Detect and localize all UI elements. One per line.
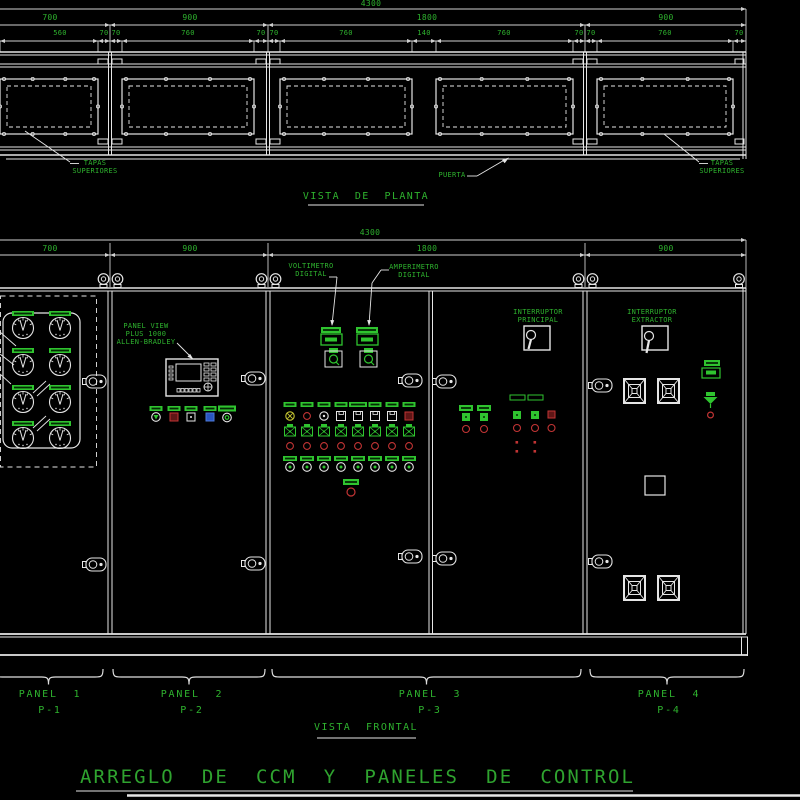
pilot-run [408,466,411,469]
gauge-tick [18,319,19,321]
top-cover-opening [597,79,733,134]
indicator-red-square [548,411,555,418]
front-label_int_extractor-0: INTERRUPTOR [627,309,677,316]
lifting-eye [273,277,277,281]
front-label_int_principal-1: PRINCIPAL [518,317,559,324]
front-label_panelview-1: PLUS 1000 [126,331,167,338]
gauge-tick [55,356,56,358]
lifting-eye-base [100,285,107,288]
gauge-needle [57,320,60,331]
label-plate-text [14,313,32,315]
label-plate-text [14,350,32,352]
leader-amperimetro-arrow [367,320,371,326]
dim-arrow [275,39,280,43]
front-panels-3-code: P-4 [657,706,680,716]
plan-caption: VISTA DE PLANTA [303,192,429,202]
plan-dim_openings-0: 560 [53,30,67,37]
gauge-needle [23,394,26,405]
dim-arrow [741,238,746,242]
gauge-tick [51,361,53,362]
joint-tab [587,139,597,144]
lifting-eye [737,277,741,281]
plan-dim_panels-0: 700 [42,14,57,22]
gauge-plate [3,313,80,448]
dim-arrow [412,39,417,43]
dim-arrow [117,39,122,43]
label-plate-text [206,408,215,410]
gauge-needle [60,357,63,368]
plan-label_tapas_left-0: TAPAS [84,160,107,167]
dim-arrow [580,253,585,257]
indicator-green [483,416,485,418]
front-label_panelview-0: PANEL VIEW [123,323,168,330]
dim-arrow [280,39,285,43]
dim-arrow [741,39,746,43]
leader-puerta-arrow [502,158,509,164]
dot [59,445,60,446]
breaker-knob-lever [647,341,650,354]
front-panels-2-name: PANEL 3 [399,690,462,700]
label-plate-text [51,350,69,352]
indicator-green [516,414,518,416]
door-handle-button [605,560,608,563]
dim-arrow [249,39,254,43]
dot [59,409,60,410]
joint-tab [587,59,597,64]
indicator-dot [534,441,537,444]
front-panels-2-code: P-3 [418,706,441,716]
label-plate-text [51,313,69,315]
label-plate-text [353,458,363,460]
hatch [37,384,50,396]
pushbutton-stop [406,443,413,450]
front-dim_total: 4300 [360,229,380,237]
pushbutton-red [304,413,311,420]
motor-symbol [306,431,308,433]
dot [55,334,56,335]
label-plate-text [170,408,179,410]
top-cover-opening [280,79,412,134]
plan-dim_openings-12: 70 [734,30,743,37]
gauge-tick [51,398,53,399]
dot [18,334,19,335]
label-plate-text [387,458,397,460]
front-panels-1-name: PANEL 2 [161,690,224,700]
indicator-red [532,425,539,432]
cad-drawing-canvas: 4300700900180090056070707607070760140760… [0,0,800,800]
label-plate-text [286,404,295,406]
dim-arrow [268,23,273,27]
joint-tab [256,139,266,144]
p4-cutout [645,476,665,495]
lifting-eye-base [258,285,265,288]
dot [26,334,27,335]
panel-brace [113,669,265,685]
fan-louver [632,389,637,394]
front-label_int_principal-0: INTERRUPTOR [513,309,563,316]
joint-tab [270,139,280,144]
hmi-key [193,389,196,393]
label-plate-text [345,481,357,483]
dim-arrow [105,23,110,27]
dim-arrow [733,39,738,43]
plan-dim_openings-7: 140 [417,30,431,37]
fan-louver [632,586,637,591]
door-handle-lock [439,378,447,386]
joint-tab [270,59,280,64]
dim-arrow [580,39,585,43]
label-plate-text [370,458,380,460]
label-plate-text [404,458,414,460]
door-handle-button [99,563,102,566]
gauge-tick [27,393,28,395]
front-panels-0-code: P-1 [38,706,61,716]
gauge-needle [23,430,26,441]
breaker-knob [645,332,654,341]
plan-label_tapas_right-0: TAPAS [711,160,734,167]
gauge-needle [57,394,60,405]
front-dim_panels-2: 1800 [417,245,437,253]
lifting-eye [576,277,580,281]
dim-arrow [741,23,746,27]
pushbutton-stop [372,443,379,450]
hmi-screen [176,364,201,381]
label-plate-text [187,408,196,410]
dim-arrow [98,39,103,43]
door-handle-lock [248,560,256,568]
label-plate-text [461,407,471,409]
dim-arrow [580,23,585,27]
label-plate-text [320,404,329,406]
pilot-run [391,466,394,469]
door-handle-button [258,377,261,380]
label-plate-text [220,408,234,410]
hatch [33,381,46,393]
hmi-key [204,368,209,371]
motor-symbol [374,431,376,433]
dim-arrow [110,253,115,257]
pushbutton-stop [389,443,396,450]
lifting-eye [734,274,745,285]
joint-tab [573,139,583,144]
dot [26,371,27,372]
plan-dim_openings-3: 760 [181,30,195,37]
dot [55,444,56,445]
label-plate-text [51,387,69,389]
label-plate-text [323,329,339,331]
dim-arrow [105,39,110,43]
gauge-needle [60,430,63,441]
lifting-eye [573,274,584,285]
lifting-eye-base [589,285,596,288]
motor-symbol [391,431,393,433]
lifting-eye [101,277,105,281]
dim-arrow [585,39,590,43]
hmi-key [185,389,188,393]
plan-dim_openings-11: 760 [658,30,672,37]
indicator-red [548,425,555,432]
plan-label_tapas_left-1: SUPERIORES [72,168,117,175]
plan-dim_openings-1: 70 [99,30,108,37]
gauge-tick [14,398,16,399]
gauge-tick [18,429,19,431]
label-plate-text [302,458,312,460]
indicator-red [463,426,470,433]
hmi-key [181,389,184,393]
gauge-tick [14,324,16,325]
dim-arrow [436,39,441,43]
ammeter-display [361,338,373,342]
gauge-leader [0,374,11,384]
dot [18,371,19,372]
gauge-tick [67,324,69,325]
label-plate-text [285,458,295,460]
dim-arrow [407,39,412,43]
door-handle-button [449,557,452,560]
pushbutton-stop [287,443,294,450]
gauge-needle [20,357,23,368]
pushbutton [354,412,363,421]
motor-symbol [340,431,342,433]
pilot-white [323,415,325,417]
plan-label_puerta: PUERTA [438,172,465,179]
label-plate-text [14,423,32,425]
front-label_amperimetro-1: DIGITAL [398,272,430,279]
hmi-key [204,378,209,381]
label-plate-text [358,329,376,331]
gauge-needle [20,394,23,405]
selector-switch [360,351,377,367]
joint-tab [112,59,122,64]
dim-arrow [741,7,746,11]
selector-knob [336,362,339,365]
front-label_amperimetro-0: AMPERIMETRO [389,264,439,271]
gauge-tick [51,434,53,435]
label-plate-text [351,404,365,406]
drawing-title: ARREGLO DE CCM Y PANELES DE CONTROL [80,768,635,787]
lifting-eye [256,274,267,285]
door-handle-lock [595,382,603,390]
extractor-switch [642,326,668,350]
label-plate-text [152,408,161,410]
gauge-needle [60,394,63,405]
pushbutton [371,412,380,421]
p4-indicator [706,371,716,375]
hmi-key [211,368,216,371]
dim-arrow [110,23,115,27]
gauge-tick [27,429,28,431]
joint-tab [98,59,108,64]
gauge-tick [18,393,19,395]
lifting-eye-base [736,285,743,288]
pushbutton-stop [321,443,328,450]
panel-brace [590,669,744,685]
front-panels-3-name: PANEL 4 [638,690,701,700]
label-plate-text [706,362,718,364]
hmi-key [169,374,173,376]
pilot-light-red [170,413,178,421]
dot [63,371,64,372]
leader-voltimetro [332,277,337,325]
dot [55,408,56,409]
front-caption: VISTA FRONTAL [314,723,418,733]
motor-symbol [357,431,359,433]
lifting-eye [112,274,123,285]
breaker-knob [527,331,536,340]
hmi-key [169,378,173,380]
front-dim_panels-0: 700 [42,245,57,253]
selector-switch [325,351,342,367]
front-label_voltimetro-1: DIGITAL [295,271,327,278]
dot [22,445,23,446]
dot [55,371,56,372]
top-cover-opening [0,79,98,134]
hmi-key [204,363,209,366]
door-handle-lock [89,561,97,569]
lifting-eye [259,277,263,281]
dim-arrow [568,39,573,43]
front-panels-0-name: PANEL 1 [19,690,82,700]
panel-brace [272,669,581,685]
lifting-eye [270,274,281,285]
gauge-tick [27,319,28,321]
gauge-tick [64,356,65,358]
top-cover-dashed [7,86,91,127]
label-plate-text [479,407,489,409]
front-dim_panels-3: 900 [658,245,673,253]
pilot-light-white [190,416,192,418]
dim-arrow [263,23,268,27]
gauge-needle [60,320,63,331]
motor-symbol [323,431,325,433]
voltmeter-display [325,338,337,342]
gauge-tick [64,319,65,321]
top-cover-dashed [443,86,566,127]
control-label-outline [510,395,525,400]
label-plate-text [14,387,32,389]
fan-louver [666,389,671,394]
pushbutton [388,412,397,421]
motor-symbol [408,431,410,433]
pushbutton [337,412,346,421]
p4-valve [706,392,715,396]
label-plate-text [303,404,312,406]
dim-arrow [263,39,268,43]
emergency-stop [347,488,355,496]
dim-arrow [268,39,273,43]
dot [63,408,64,409]
pilot-run [374,466,377,469]
dim-arrow [728,39,733,43]
joint-tab [573,59,583,64]
dot [63,444,64,445]
indicator-green [534,414,536,416]
dim-arrow [122,39,127,43]
door-handle-lock [89,378,97,386]
front-dim_panels-1: 900 [182,245,197,253]
front-label_panelview-2: ALLEN-BRADLEY [117,339,176,346]
gauge-tick [30,398,32,399]
label-plate-text [319,458,329,460]
plan-dim_panels-3: 900 [658,14,673,22]
plan-dim_panels-1: 900 [182,14,197,22]
front-label_voltimetro-0: VOLTIMETRO [288,263,333,270]
leader-amperimetro [369,283,372,325]
breaker-knob-lever [529,340,532,350]
gauge-tick [27,356,28,358]
dim-arrow [110,39,115,43]
door-handle-lock [405,553,413,561]
plan-dim_panels-2: 1800 [417,14,437,22]
plan-dim_openings-5: 70 [269,30,278,37]
gauge-tick [30,361,32,362]
gauge-needle [20,430,23,441]
hmi-key [204,373,209,376]
top-cover-dashed [604,86,726,127]
lifting-eye [98,274,109,285]
dim-arrow [93,39,98,43]
joint-tab [98,139,108,144]
pushbutton-red [405,412,413,420]
gauge-tick [18,356,19,358]
lifting-eye-base [114,285,121,288]
gauge-tick [55,393,56,395]
pilot-light-green [223,413,232,422]
plan-dim_openings-10: 70 [586,30,595,37]
gauge-tick [64,393,65,395]
plan-dim_openings-8: 760 [497,30,511,37]
door-handle-button [258,562,261,565]
dim-arrow [0,39,5,43]
door-handle-lock [595,558,603,566]
p4-pilot-red [708,412,714,418]
dim-arrow [573,39,578,43]
selector-light [154,415,159,420]
top-cover-opening [122,79,254,134]
indicator-dot [516,441,519,444]
dot [26,444,27,445]
gauge-tick [30,324,32,325]
gauge-tick [55,319,56,321]
dim-arrow [254,39,259,43]
hmi-key [211,363,216,366]
plan-label_tapas_right-1: SUPERIORES [699,168,744,175]
door-handle-button [449,380,452,383]
lifting-eye [115,277,119,281]
dot [22,372,23,373]
hmi-key [169,370,173,372]
dim-arrow [585,23,590,27]
door-handle-button [99,380,102,383]
control-label-outline [528,395,543,400]
lifting-eye-base [575,285,582,288]
dot [59,372,60,373]
label-plate-text [388,404,397,406]
pilot-run [289,466,292,469]
pilot-run [340,466,343,469]
leader-panelview [177,343,191,357]
plan-dim_total: 4300 [361,0,381,8]
gauge-tick [14,361,16,362]
gauge-leader [0,332,16,346]
door-handle-lock [405,377,413,385]
lifting-eye-base [272,285,279,288]
gauge-tick [30,434,32,435]
hatch [37,419,50,431]
leader-tapas-right [664,134,699,162]
lifting-eye [590,277,594,281]
gauge-needle [23,320,26,331]
